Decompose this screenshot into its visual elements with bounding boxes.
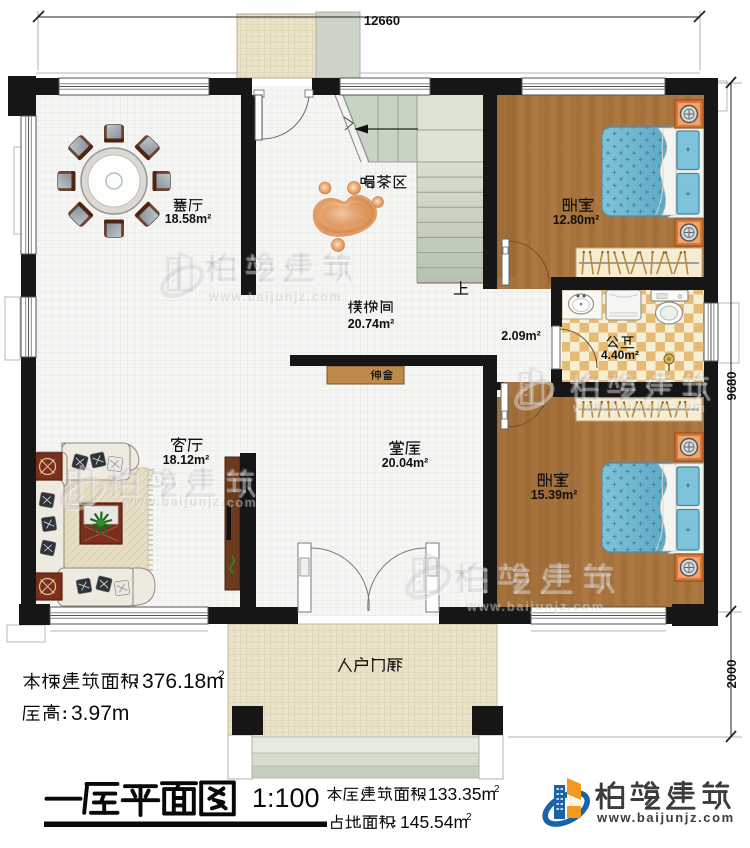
svg-text::: : [133, 672, 139, 691]
svg-text:4.40m²: 4.40m² [601, 348, 639, 362]
svg-text::: : [62, 704, 68, 723]
svg-text:1:100: 1:100 [252, 783, 320, 813]
svg-text:12.80m²: 12.80m² [553, 213, 600, 227]
svg-text:145.54m: 145.54m [400, 812, 468, 832]
svg-text::: : [392, 814, 397, 830]
svg-text:20.04m²: 20.04m² [382, 456, 429, 470]
svg-text:12660: 12660 [364, 13, 400, 28]
svg-text:133.35m: 133.35m [428, 784, 496, 804]
svg-text:www.baijunjz.com: www.baijunjz.com [465, 598, 604, 613]
svg-text:2: 2 [494, 784, 500, 795]
svg-text:18.58m²: 18.58m² [165, 212, 212, 226]
svg-text:www.baijunjz.com: www.baijunjz.com [571, 400, 705, 414]
svg-text:2.09m²: 2.09m² [501, 329, 541, 343]
svg-text:www.baijunjz.com: www.baijunjz.com [208, 290, 342, 304]
svg-text:www.baijunjz.com: www.baijunjz.com [596, 810, 735, 825]
svg-text:20.74m²: 20.74m² [348, 317, 395, 331]
svg-text:18.12m²: 18.12m² [163, 453, 210, 467]
svg-text:376.18m: 376.18m [142, 670, 224, 693]
svg-text:2000: 2000 [724, 660, 739, 689]
svg-text:9680: 9680 [724, 372, 739, 401]
svg-text::: : [420, 786, 425, 802]
svg-text:15.39m²: 15.39m² [531, 488, 578, 502]
svg-text:2: 2 [218, 668, 225, 682]
svg-text:2: 2 [466, 812, 472, 823]
svg-text:3.97m: 3.97m [71, 702, 129, 725]
svg-text:www.baijunjz.com: www.baijunjz.com [122, 495, 256, 509]
